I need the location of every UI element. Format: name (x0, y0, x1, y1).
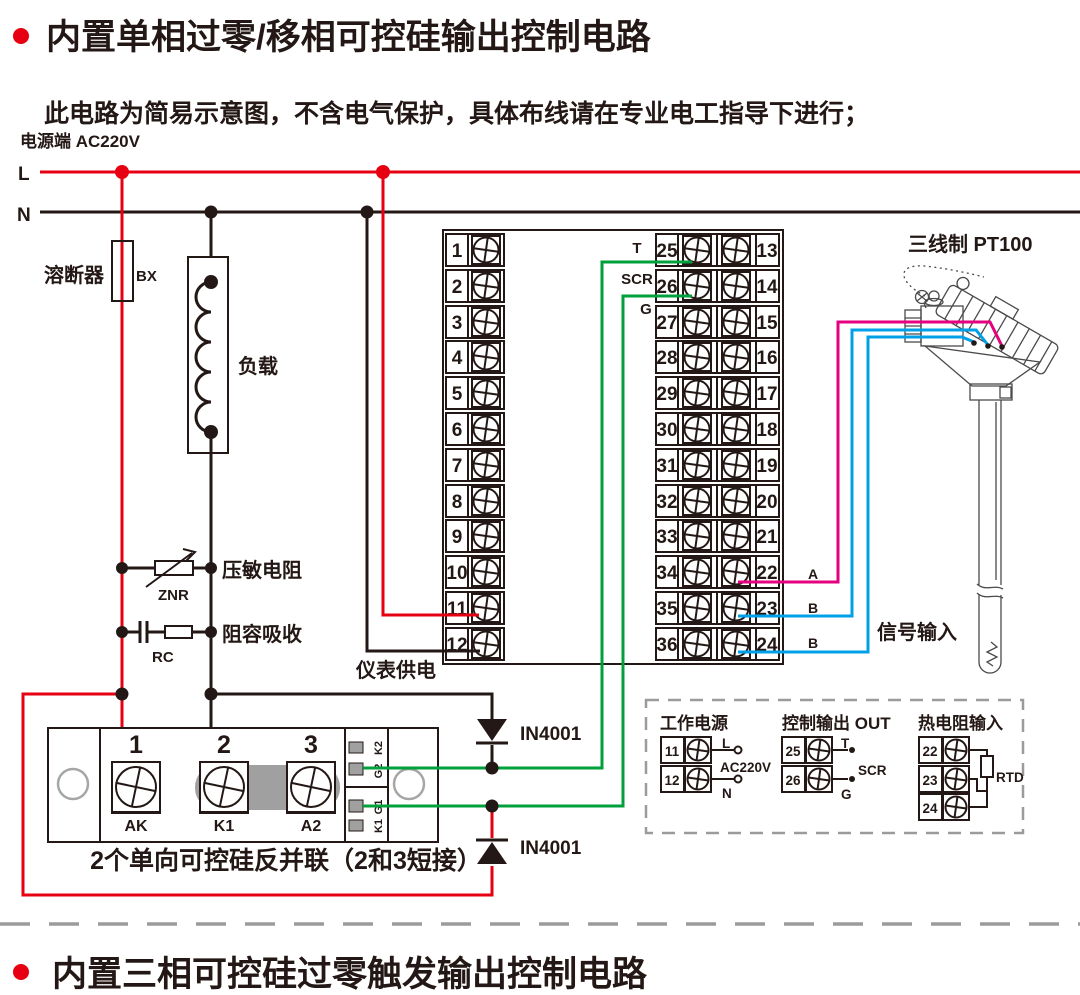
terminal-number: 4 (452, 348, 463, 369)
footer: 内置三相可控硅过零触发输出控制电路 (0, 924, 1080, 994)
terminal-number: 31 (656, 456, 678, 477)
module-label-a2: A2 (301, 818, 322, 835)
bullet-icon (13, 964, 29, 980)
sensor-probe (979, 400, 1001, 673)
inset-terminal: 12 (664, 773, 679, 788)
terminal-number: 19 (756, 456, 777, 477)
terminal-number: 8 (452, 492, 463, 513)
power-rails: 电源端 AC220V L N (17, 131, 1080, 226)
snubber-label: 阻容吸收 (222, 622, 302, 646)
diode-bottom-label: IN4001 (520, 838, 582, 859)
terminal-number: 10 (446, 563, 467, 584)
source-label: 电源端 AC220V (20, 131, 141, 151)
resistor-symbol (165, 626, 192, 638)
pin-label: G2 (373, 764, 385, 779)
inset-n-label: N (722, 786, 732, 801)
load-branch: 负载 (188, 212, 278, 787)
terminal-number: 13 (756, 241, 777, 262)
terminal-number: 29 (656, 384, 677, 405)
terminal-number: 36 (656, 635, 677, 656)
inset-terminal: 26 (785, 773, 801, 788)
label-t: T (632, 240, 641, 257)
module-terminal-3: 3 (304, 731, 318, 759)
inset-terminal: 23 (922, 773, 938, 788)
module-label-ak: AK (124, 818, 148, 835)
bullet-icon (13, 28, 29, 44)
inset-t-label: T (841, 736, 850, 751)
pin-label: K2 (373, 741, 385, 755)
terminal-number: 2 (452, 277, 463, 298)
terminal-number: 16 (756, 348, 777, 369)
terminal-number: 18 (756, 420, 777, 441)
terminal-number: 20 (756, 492, 777, 513)
pad-k1 (349, 820, 363, 831)
terminal-number: 1 (452, 241, 463, 262)
diodes: IN4001 IN4001 (476, 719, 582, 864)
terminal-number: 35 (656, 599, 678, 620)
inset-out-title: 控制输出 OUT (782, 713, 891, 733)
terminal-number: 15 (756, 313, 778, 334)
pad-g1 (349, 800, 363, 812)
module-terminal-1: 1 (129, 731, 143, 759)
terminal-number: 25 (656, 241, 678, 262)
terminal-number: 14 (756, 277, 778, 298)
line-l-label: L (18, 164, 30, 185)
label-g: G (640, 301, 652, 318)
snubber-code: RC (152, 649, 174, 666)
terminal-number: 5 (452, 384, 463, 405)
terminal-number: 6 (452, 420, 463, 441)
terminal-number: 9 (452, 527, 463, 548)
pt100-sensor: 三线制 PT100 A B B 信号输入 (808, 232, 1066, 673)
load-to-diode-wire (211, 694, 492, 719)
inset-terminal: 11 (665, 744, 680, 759)
terminal-number: 33 (656, 527, 677, 548)
legend-inset: 工作电源 11 12 L AC220V N 控制输出 OUT 25 26 T S… (646, 700, 1024, 833)
terminal-number: 12 (446, 635, 467, 656)
module-label-k1: K1 (214, 818, 235, 835)
terminal-number: 7 (452, 456, 463, 477)
varistor-symbol (155, 561, 193, 575)
terminal-number: 27 (656, 313, 677, 334)
pin-label: K1 (373, 819, 385, 833)
module-terminal-2: 2 (217, 731, 231, 759)
header: 内置单相过零/移相可控硅输出控制电路 此电路为简易示意图，不含电气保护，具体布线… (13, 18, 869, 128)
fuse-label: 溶断器 (44, 263, 105, 287)
terminal-number: 21 (756, 527, 778, 548)
inset-terminal: 24 (922, 801, 938, 816)
inset-power-title: 工作电源 (660, 713, 728, 733)
page-title: 内置单相过零/移相可控硅输出控制电路 (46, 18, 652, 57)
signal-input-label: 信号输入 (877, 620, 957, 644)
inset-terminal: 25 (785, 744, 801, 759)
inset-voltage-label: AC220V (720, 760, 771, 775)
terminal-number: 28 (656, 348, 677, 369)
body-screw-icon (929, 291, 939, 301)
fuse-code: BX (136, 268, 157, 285)
wire-b1-label: B (808, 600, 818, 616)
sensor-title: 三线制 PT100 (908, 232, 1032, 256)
inset-l-label: L (722, 736, 730, 751)
terminal-number: 17 (756, 384, 777, 405)
scr-module: K2 G2 G1 K1 1 2 3 AK K1 A2 2个单向可控硅反并联（2和… (48, 728, 482, 875)
inset-terminal: 22 (922, 744, 937, 759)
pad-k2 (349, 742, 363, 753)
inset-scr-label: SCR (858, 763, 887, 778)
load-label: 负载 (238, 354, 278, 378)
sensor-cap (934, 273, 1065, 375)
wire-b2-label: B (808, 635, 818, 651)
inset-g-label: G (841, 787, 852, 802)
terminal-number: 34 (656, 563, 678, 584)
module-caption: 2个单向可控硅反并联（2和3短接） (90, 846, 482, 875)
inset-rtd-title: 热电阻输入 (918, 713, 1003, 733)
varistor-label: 压敏电阻 (222, 558, 302, 582)
wire-a-label: A (808, 566, 818, 582)
varistor-code: ZNR (158, 587, 189, 604)
label-scr: SCR (621, 271, 653, 288)
sensor-funnel (925, 346, 1040, 386)
footer-title: 内置三相可控硅过零触发输出控制电路 (52, 955, 648, 994)
chain-icon (904, 266, 984, 296)
diode-top-icon (477, 719, 507, 741)
terminal-number: 11 (447, 599, 468, 620)
terminal-number: 32 (656, 492, 677, 513)
line-n-label: N (17, 205, 31, 226)
probe-element (987, 642, 997, 666)
rtd-resistor-symbol (981, 756, 993, 777)
page-subtitle: 此电路为简易示意图，不含电气保护，具体布线请在专业电工指导下进行； (44, 99, 869, 128)
pad-g2 (349, 763, 363, 775)
instrument-supply-label: 仪表供电 (355, 658, 436, 682)
terminal-number: 3 (452, 313, 463, 334)
terminal-number: 30 (656, 420, 677, 441)
inset-rtd-label: RTD (996, 770, 1024, 785)
wiring-diagram-page: 内置单相过零/移相可控硅输出控制电路 此电路为简易示意图，不含电气保护，具体布线… (0, 0, 1080, 995)
diode-top-label: IN4001 (520, 724, 582, 745)
